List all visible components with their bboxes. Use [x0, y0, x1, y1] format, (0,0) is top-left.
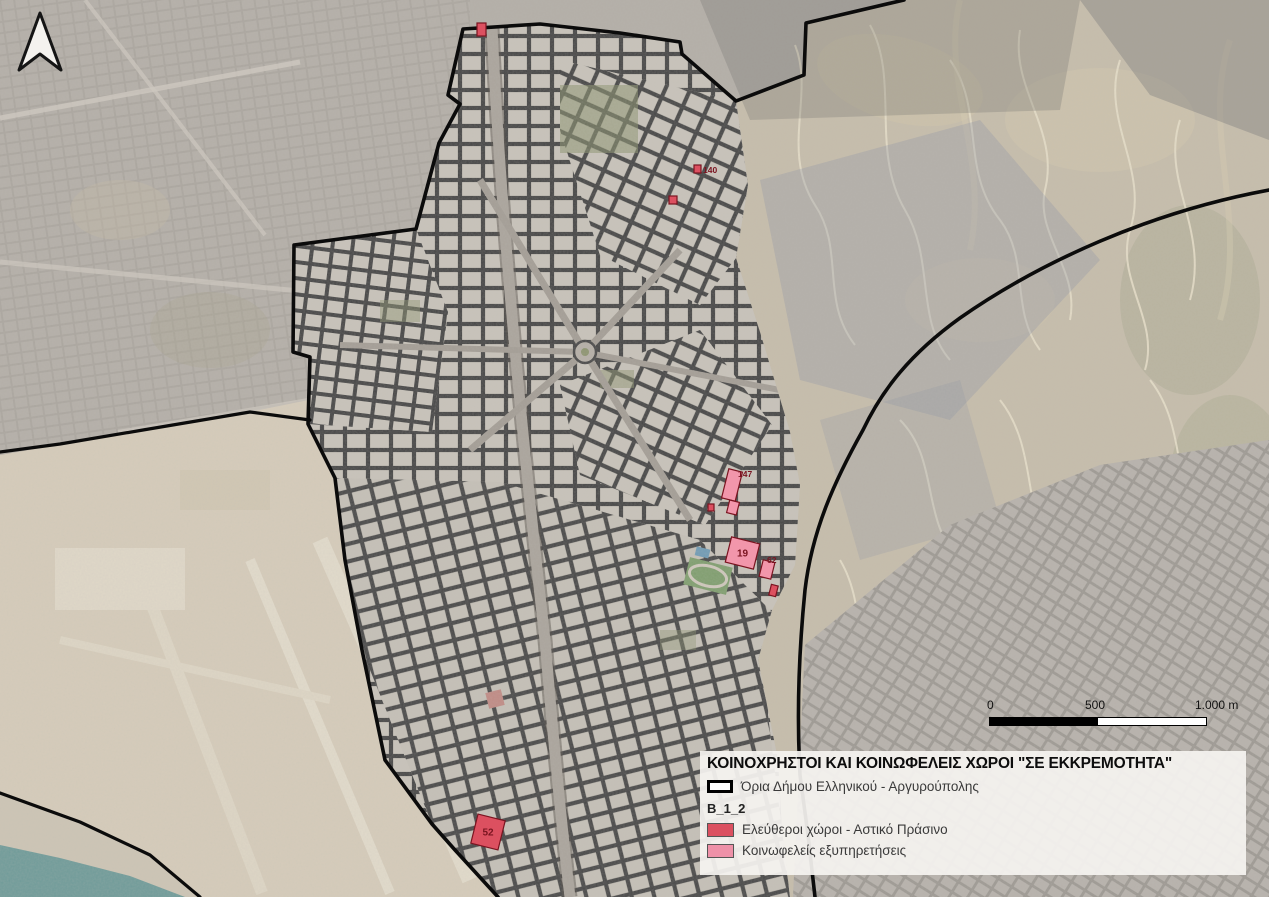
map-parcel-label: 62: [767, 555, 777, 565]
open-spaces-swatch: [707, 823, 734, 837]
scale-bar: 0 500 1.000 m: [985, 698, 1243, 730]
hill-shadow-top: [700, 0, 1080, 120]
map-parcel: [694, 165, 701, 173]
scale-bar-track: [989, 717, 1207, 726]
legend-communal-label: Κοινωφελείς εξυπηρετήσεις: [742, 843, 906, 858]
legend-item-boundary: Όρια Δήμου Ελληνικού - Αργυρούπολης: [707, 779, 1238, 794]
scale-tick-500: 500: [1085, 698, 1105, 712]
communal-swatch: [707, 844, 734, 858]
legend-boundary-label: Όρια Δήμου Ελληνικού - Αργυρούπολης: [741, 779, 979, 794]
legend-item-communal: Κοινωφελείς εξυπηρετήσεις: [707, 843, 1238, 858]
boundary-swatch: [707, 780, 733, 793]
map-legend: ΚΟΙΝΟΧΡΗΣΤΟΙ ΚΑΙ ΚΟΙΝΩΦΕΛΕΙΣ ΧΩΡΟΙ "ΣΕ Ε…: [700, 751, 1246, 875]
map-parcel-label: 19: [737, 549, 749, 560]
map-parcel-label: 140: [703, 165, 717, 175]
north-arrow-icon: [16, 10, 64, 76]
map-parcel: [708, 504, 714, 511]
legend-title: ΚΟΙΝΟΧΡΗΣΤΟΙ ΚΑΙ ΚΟΙΝΩΦΕΛΕΙΣ ΧΩΡΟΙ "ΣΕ Ε…: [707, 755, 1238, 773]
legend-group-label: B_1_2: [707, 801, 1238, 816]
map-parcel-label: 147: [738, 469, 752, 479]
map-parcel: [669, 196, 677, 204]
scale-tick-0: 0: [987, 698, 994, 712]
legend-item-open-spaces: Ελεύθεροι χώροι - Αστικό Πράσινο: [707, 822, 1238, 837]
map-document: 140147196252 0 500 1.000 m ΚΟΙΝΟΧΡΗΣΤΟΙ …: [0, 0, 1269, 897]
scale-bar-filled-half: [990, 718, 1098, 725]
map-parcel: [477, 23, 486, 36]
map-parcel-label: 52: [482, 828, 494, 839]
legend-open-spaces-label: Ελεύθεροι χώροι - Αστικό Πράσινο: [742, 822, 948, 837]
scale-tick-1000: 1.000 m: [1195, 698, 1238, 712]
